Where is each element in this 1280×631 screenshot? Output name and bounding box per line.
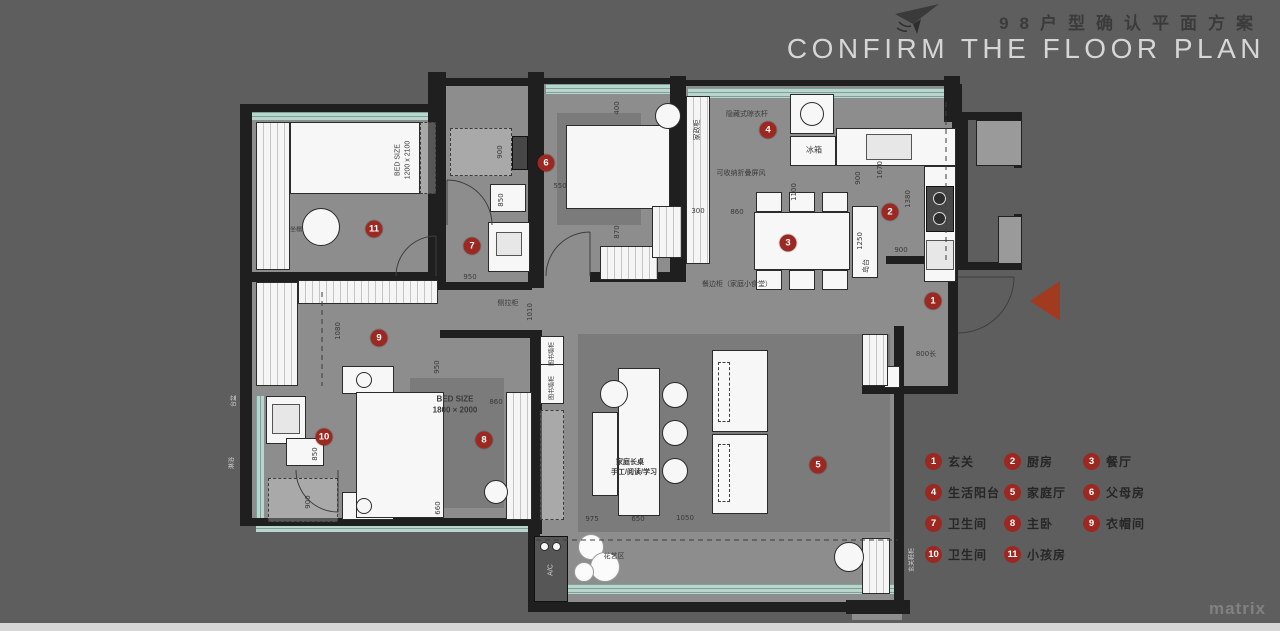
legend-label: 餐厅: [1106, 453, 1132, 470]
dimension-label: 660: [434, 501, 442, 514]
plan-label: 1200 x 2100: [405, 141, 412, 180]
dimension-label: 650: [631, 515, 644, 523]
legend-label: 小孩房: [1027, 546, 1066, 563]
legend-label: 家庭厅: [1027, 484, 1066, 501]
plan-label: 家政柜: [692, 120, 702, 141]
room-marker-7: 7: [464, 238, 481, 255]
plan-label: 图书墙柜: [547, 376, 556, 400]
plan-label: BED SIZE: [437, 395, 474, 404]
legend-label: 父母房: [1106, 484, 1145, 501]
room-marker-10: 10: [316, 429, 333, 446]
legend-item-8: 8主卧: [1004, 514, 1083, 532]
dimension-label: 800长: [916, 349, 936, 359]
plan-label: 台盆: [229, 395, 238, 407]
dimension-label: 900: [496, 145, 504, 158]
legend-label: 卫生间: [948, 515, 987, 532]
plan-label: 图书墙柜: [547, 342, 556, 366]
room-marker-11: 11: [366, 221, 383, 238]
room-marker-9: 9: [371, 330, 388, 347]
door-arc: [296, 180, 1014, 512]
dimension-label: 1670: [876, 161, 884, 179]
room-marker-5: 5: [810, 457, 827, 474]
plan-label: 玄关鞋柜: [907, 548, 916, 572]
room-marker-3: 3: [780, 235, 797, 252]
legend-label: 主卧: [1027, 515, 1053, 532]
legend-marker-10: 10: [925, 546, 942, 563]
legend-label: 生活阳台: [948, 484, 1000, 501]
dimension-label: 400: [613, 101, 621, 114]
dimension-label: 1010: [526, 303, 534, 321]
plan-label: 1800 × 2000: [433, 406, 478, 415]
dimension-label: 900: [854, 171, 862, 184]
plan-label: 冰箱: [806, 145, 822, 156]
dimension-label: 1080: [334, 322, 342, 340]
dimension-label: 1100: [790, 183, 798, 201]
legend-item-10: 10卫生间: [925, 545, 1004, 563]
dimension-label: 850: [497, 193, 505, 206]
legend-item-1: 1玄关: [925, 452, 1004, 470]
legend-marker-9: 9: [1083, 515, 1100, 532]
dimension-label: 900: [894, 246, 907, 254]
entry-direction-arrow-icon: [1030, 281, 1060, 321]
legend-marker-1: 1: [925, 453, 942, 470]
dimension-label: 975: [585, 515, 598, 523]
dimension-label: 870: [613, 225, 621, 238]
plan-label: 家庭长桌: [616, 457, 644, 467]
dimension-label: 950: [463, 273, 476, 281]
room-marker-1: 1: [925, 293, 942, 310]
legend-item-5: 5家庭厅: [1004, 483, 1083, 501]
dimension-label: 860: [489, 398, 502, 406]
plan-label: 坐榻: [290, 225, 302, 234]
legend-marker-7: 7: [925, 515, 942, 532]
legend-marker-2: 2: [1004, 453, 1021, 470]
dimension-label: 300: [691, 207, 704, 215]
legend-item-7: 7卫生间: [925, 514, 1004, 532]
dimension-label: 1250: [856, 232, 864, 250]
room-marker-2: 2: [882, 204, 899, 221]
dimension-label: 950: [433, 360, 441, 373]
room-marker-4: 4: [760, 122, 777, 139]
plan-label: 餐边柜（家庭小食堂）: [702, 279, 772, 289]
room-marker-8: 8: [476, 432, 493, 449]
dimension-label: 860: [730, 208, 743, 216]
legend-label: 厨房: [1027, 453, 1053, 470]
legend-marker-6: 6: [1083, 484, 1100, 501]
legend-label: 卫生间: [948, 546, 987, 563]
room-marker-6: 6: [538, 155, 555, 172]
legend-item-11: 11小孩房: [1004, 545, 1083, 563]
legend-marker-11: 11: [1004, 546, 1021, 563]
plan-label: 岛台: [861, 259, 871, 273]
legend-marker-4: 4: [925, 484, 942, 501]
legend-item-4: 4生活阳台: [925, 483, 1004, 501]
plan-label: 可收纳折叠屏风: [717, 168, 766, 178]
room-legend: 1玄关2厨房3餐厅4生活阳台5家庭厅6父母房7卫生间8主卧9衣帽间10卫生间11…: [925, 452, 1177, 563]
plan-label: 淋浴: [227, 457, 236, 469]
legend-marker-3: 3: [1083, 453, 1100, 470]
legend-item-9: 9衣帽间: [1083, 514, 1173, 532]
legend-label: 玄关: [948, 453, 974, 470]
plan-label: 侧拉柜: [498, 298, 519, 308]
legend-item-6: 6父母房: [1083, 483, 1173, 501]
plan-label: 花艺区: [604, 551, 625, 561]
plan-label: 隐藏式晾衣杆: [726, 109, 768, 119]
plan-label: A/C: [548, 564, 555, 576]
legend-marker-5: 5: [1004, 484, 1021, 501]
legend-item-2: 2厨房: [1004, 452, 1083, 470]
legend-item-3: 3餐厅: [1083, 452, 1173, 470]
dimension-label: 1380: [904, 190, 912, 208]
dimension-label: 550: [553, 182, 566, 190]
plan-label: 手工/阅读/学习: [611, 467, 657, 477]
dimension-label: 850: [311, 447, 319, 460]
legend-label: 衣帽间: [1106, 515, 1145, 532]
dimension-label: 1050: [676, 514, 694, 522]
legend-marker-8: 8: [1004, 515, 1021, 532]
dimension-label: 900: [304, 495, 312, 508]
plan-label: BED SIZE: [395, 144, 402, 176]
